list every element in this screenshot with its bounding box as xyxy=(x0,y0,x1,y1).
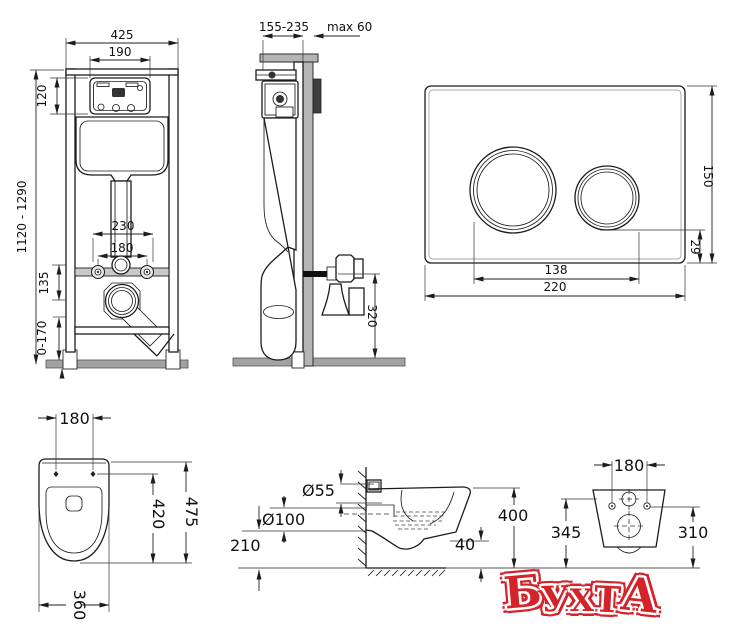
frame-front-view: 425 190 120 1120 - 1290 230 180 135 0-17… xyxy=(15,28,188,378)
dim-outlet-diameter: Ø100 xyxy=(262,510,305,529)
tank-and-elbow xyxy=(261,118,296,360)
watermark-letter: У xyxy=(541,582,571,618)
watermark-letter: А xyxy=(618,570,660,620)
dim-rim-gap: 40 xyxy=(455,535,475,554)
dim-button-bottom-offset: 29 xyxy=(688,239,702,254)
dim-outlet-axis-height: 210 xyxy=(230,536,261,555)
dim-bowl-inner-length: 420 xyxy=(149,499,168,530)
dim-bowl-length: 475 xyxy=(182,497,201,528)
dim-rear-bolt-spacing: 180 xyxy=(614,456,645,475)
dim-fixing-spacing-wide: 230 xyxy=(112,219,135,233)
frame-rail-right xyxy=(169,69,178,352)
frame-foot-left xyxy=(63,350,77,369)
frame-top-bar xyxy=(66,69,178,75)
dim-bolt-height: 310 xyxy=(678,523,709,542)
bracket-bolt xyxy=(269,72,276,79)
flush-plate-view: 150 29 138 220 xyxy=(425,86,717,301)
floor-hatching xyxy=(368,570,445,576)
dim-bowl-height: 400 xyxy=(498,506,529,525)
dim-plate-height: 150 xyxy=(701,165,715,188)
inlet-connector xyxy=(336,255,354,282)
dim-drain-offset: 135 xyxy=(37,272,51,295)
technical-drawing-page: 425 190 120 1120 - 1290 230 180 135 0-17… xyxy=(0,0,739,640)
dim-foot-adjust-range: 0-170 xyxy=(35,321,49,356)
dim-fixing-spacing-narrow: 180 xyxy=(111,241,134,255)
dim-bowl-width: 360 xyxy=(70,590,89,621)
wall-stud xyxy=(303,62,313,366)
watermark-letter: Б xyxy=(502,569,543,616)
dim-window-height: 120 xyxy=(35,85,49,108)
flush-valve xyxy=(112,88,125,97)
rod-nut xyxy=(327,267,336,280)
bowl-rear-bump xyxy=(617,547,641,553)
outlet-sleeve xyxy=(349,288,364,315)
lower-crossbar xyxy=(75,327,169,334)
dim-bowl-bolt-spacing: 180 xyxy=(59,409,90,428)
outlet-cone xyxy=(322,284,349,315)
dim-plate-width: 220 xyxy=(544,280,567,294)
flush-plate-side xyxy=(313,79,321,113)
dim-inlet-height: 345 xyxy=(551,523,582,542)
buhta-watermark-logo: БУХТА xyxy=(514,571,648,635)
frame-foot-side xyxy=(292,352,304,368)
fixing-bolt-left xyxy=(92,266,105,279)
dim-plate-max-depth: max 60 xyxy=(327,20,372,34)
frame-side-view: 155-235 max 60 320 xyxy=(233,20,405,368)
dim-frame-height-range: 1120 - 1290 xyxy=(15,180,29,253)
threaded-rod xyxy=(303,271,328,277)
dim-depth-range: 155-235 xyxy=(259,20,309,34)
frame-foot-right xyxy=(166,350,180,369)
ceiling-bracket xyxy=(260,54,318,62)
window-clip-left xyxy=(97,83,109,87)
bowl-top-view: 180 475 420 360 xyxy=(38,409,201,624)
wall-hatching xyxy=(358,471,366,566)
floor-band xyxy=(233,358,405,366)
drain-opening xyxy=(106,285,139,318)
frame-rail-left xyxy=(66,69,75,352)
bowl-rear-view: 180 345 310 xyxy=(549,456,711,568)
dim-outlet-height: 320 xyxy=(365,305,379,328)
window-clip-right xyxy=(126,83,138,87)
water-level xyxy=(393,512,448,529)
watermark-letter: Х xyxy=(570,586,594,617)
inlet-connector-end xyxy=(354,259,363,278)
fixing-bolt-right xyxy=(141,266,154,279)
dim-inlet-diameter: Ø55 xyxy=(302,481,335,500)
dim-buttons-span: 138 xyxy=(545,263,568,277)
drawing-canvas: 425 190 120 1120 - 1290 230 180 135 0-17… xyxy=(0,0,739,640)
watermark-letter: Т xyxy=(593,581,622,618)
valve-box xyxy=(276,107,293,117)
dim-frame-total-width: 425 xyxy=(111,28,134,42)
flush-plate xyxy=(425,86,685,263)
dim-window-width: 190 xyxy=(109,45,132,59)
